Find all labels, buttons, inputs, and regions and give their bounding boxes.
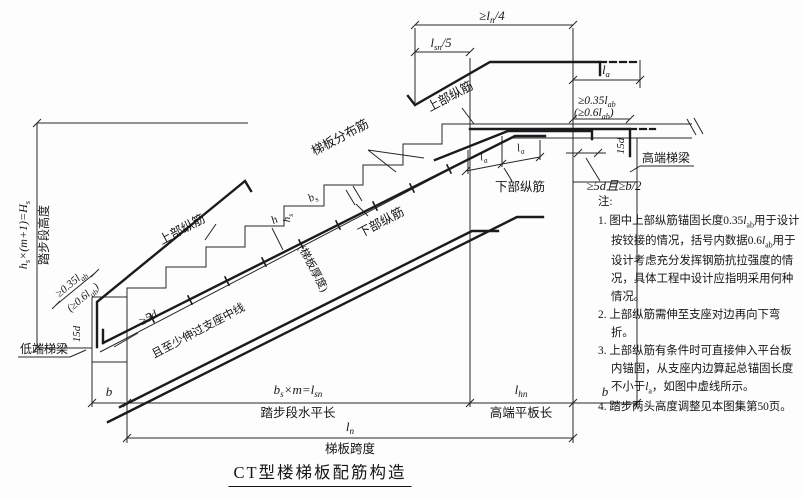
- steps-outline: [127, 124, 481, 308]
- label-low-beam: 低端梯梁: [20, 341, 68, 356]
- dim-height-formula: hs×(m+1)=Hs: [16, 201, 32, 269]
- anchor-note-high-line2: (≥0.6lab): [574, 107, 614, 121]
- label-slab-thickness: (梯板厚度): [295, 242, 332, 294]
- hook-15d-low: 15d: [71, 325, 83, 342]
- dim-bs-m-lsn: bs×m=lsn: [274, 382, 323, 399]
- dim-b-left: b: [106, 384, 113, 399]
- dim-lhn: lhn: [515, 382, 528, 399]
- hook-15d-high: 15d: [615, 137, 627, 154]
- top-bar-in-slab: [470, 129, 630, 156]
- label-bottom-bars-right: 下部纵筋: [495, 179, 545, 194]
- dim-flat-run: 高端平板长: [490, 405, 553, 420]
- break-away-bar-lower: [108, 217, 543, 422]
- note-item-3: 3. 上部纵筋有条件时可直接伸入平台板内锚固，从支座内边算起总锚固长度不小于la…: [598, 342, 802, 398]
- dim-ln4: ≥ln/4: [479, 8, 505, 25]
- leader-lines: [18, 108, 694, 357]
- bottom-bar-flat: [435, 131, 592, 160]
- notes-list: 1. 图中上部纵筋锚固长度0.35lab用于设计按铰接的情况，括号内数据0.6l…: [598, 212, 802, 416]
- dim-bs: bs: [306, 190, 320, 206]
- dim-height-name: 踏步段高度: [36, 205, 51, 265]
- figure-title: CT型楼梯板配筋构造: [228, 459, 411, 487]
- dim-span: 梯板跨度: [325, 441, 376, 456]
- label-top-bars-low: 上部纵筋: [156, 211, 207, 248]
- dim-la-junction2: la: [516, 141, 526, 156]
- high-beam-outline: [573, 138, 637, 182]
- dim-tread-run: 踏步段水平长: [260, 405, 336, 420]
- label-bottom-bars-mid: 下部纵筋: [355, 204, 406, 241]
- slab-break-mark-right: [687, 118, 703, 135]
- dimension-ticks: [33, 21, 644, 442]
- distribution-bar-ticks: [150, 165, 451, 322]
- label-distribution-bars: 梯板分布筋: [309, 116, 371, 159]
- notes-heading: 注:: [598, 193, 802, 211]
- dim-ln: ln: [346, 419, 355, 436]
- dim-hs: hs: [281, 214, 295, 223]
- note-item-1: 1. 图中上部纵筋锚固长度0.35lab用于设计按铰接的情况，括号内数据0.6l…: [598, 212, 802, 306]
- slab-break-mark-mid: [346, 186, 362, 205]
- dim-lsn5: lsn/5: [431, 36, 452, 52]
- notes-block: 注: 1. 图中上部纵筋锚固长度0.35lab用于设计按铰接的情况，括号内数据0…: [598, 193, 802, 416]
- dim-h: h: [269, 214, 280, 227]
- drawing-canvas: ≥ln/4lsn/5la≥0.35lab(≥0.6lab)≥0.35lab(≥0…: [0, 0, 804, 500]
- reference-lines: [37, 28, 640, 443]
- figure-labels: ≥ln/4lsn/5la≥0.35lab(≥0.6lab)≥0.35lab(≥0…: [16, 8, 690, 456]
- dim-la-top: la: [602, 63, 610, 79]
- note-item-4: 4. 踏步两头高度调整见本图集第50页。: [598, 398, 802, 416]
- dimension-lines: [56, 25, 640, 438]
- note-item-2: 2. 上部纵筋需伸至支座对边再向下弯折。: [598, 306, 802, 342]
- dim-5d-b2: ≥5d且≥b/2: [587, 179, 642, 193]
- label-high-beam: 高端梯梁: [642, 150, 690, 165]
